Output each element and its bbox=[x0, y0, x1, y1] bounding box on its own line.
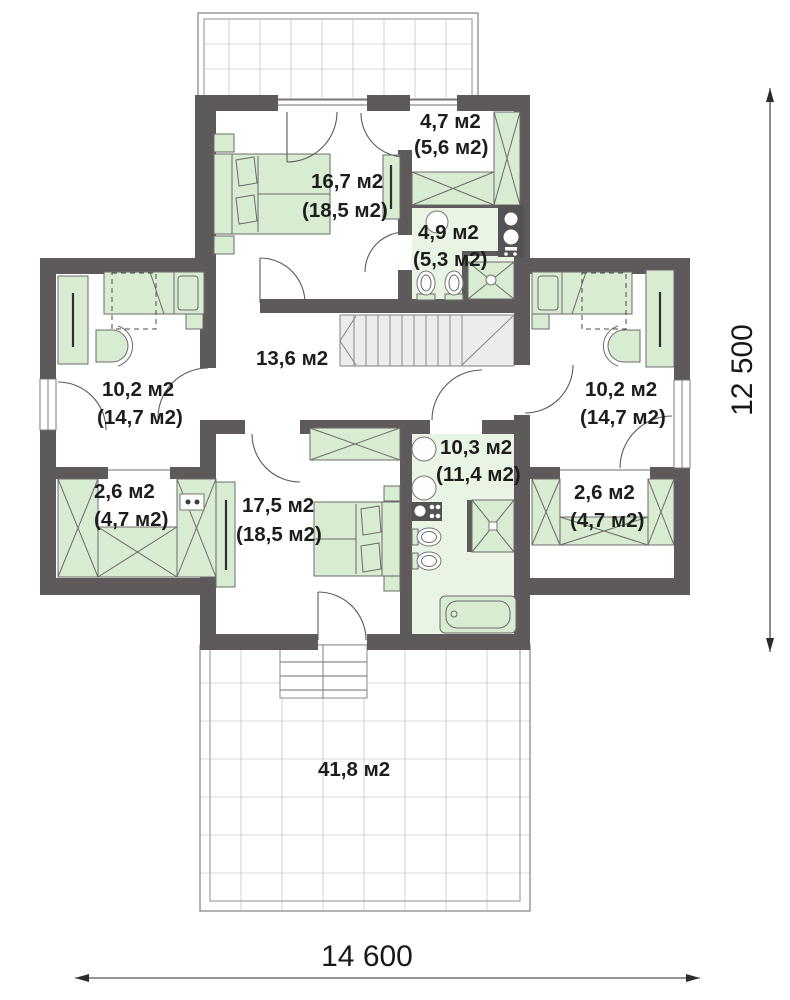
terrace-door-arc bbox=[318, 592, 366, 640]
toilet bbox=[417, 271, 435, 300]
dimension-depth: 12 500 bbox=[726, 88, 774, 652]
bedroom-top-furniture bbox=[214, 134, 400, 254]
label-terrace: 41,8 м2 bbox=[318, 758, 390, 781]
window-left bbox=[40, 379, 56, 430]
balcony-top bbox=[198, 13, 478, 100]
terrace-steps bbox=[280, 645, 367, 698]
bedroom-right-door-arc bbox=[525, 365, 573, 413]
nightstand bbox=[214, 134, 234, 152]
bed-foot-block bbox=[186, 314, 203, 329]
bedroom-bottom-door-arc bbox=[252, 434, 300, 482]
laundry-box bbox=[180, 494, 204, 510]
label-closet-right: 2,6 м2 bbox=[574, 481, 635, 504]
pillow bbox=[178, 276, 198, 310]
nightstand bbox=[384, 576, 400, 591]
window-right bbox=[674, 380, 690, 468]
nightstand bbox=[214, 236, 234, 254]
label-bath-top: 4,9 м2 bbox=[418, 221, 479, 244]
label-closet-left-total: (4,7 м2) bbox=[94, 508, 168, 531]
dimension-width-label: 14 600 bbox=[321, 940, 413, 973]
pillow bbox=[361, 506, 381, 535]
label-wardrobe-top: 4,7 м2 bbox=[420, 110, 481, 133]
pillow bbox=[538, 276, 558, 310]
label-bedroom-bottom: 17,5 м2 bbox=[242, 494, 314, 517]
bedroom-left-furniture bbox=[58, 272, 204, 366]
bedroom-right-furniture bbox=[532, 270, 674, 367]
pillow bbox=[361, 543, 381, 572]
label-hall: 13,6 м2 bbox=[256, 347, 328, 370]
chair bbox=[608, 330, 640, 362]
bathtub bbox=[440, 596, 516, 633]
pillow bbox=[236, 195, 257, 224]
washbasin bbox=[412, 476, 436, 500]
dimension-depth-label: 12 500 bbox=[726, 324, 759, 416]
bidet bbox=[445, 271, 463, 300]
toilet bbox=[412, 528, 441, 546]
bath-top-door-arc bbox=[365, 232, 405, 272]
nightstand bbox=[384, 486, 400, 501]
washbasin bbox=[412, 437, 436, 461]
label-bath-bottom-total: (11,4 м2) bbox=[436, 463, 521, 486]
bath-bottom-door-arc bbox=[432, 370, 482, 420]
label-bath-top-total: (5,3 м2) bbox=[413, 248, 487, 271]
staircase bbox=[340, 315, 514, 366]
label-bedroom-right-total: (14,7 м2) bbox=[580, 406, 666, 429]
label-closet-right-total: (4,7 м2) bbox=[570, 509, 644, 532]
label-closet-left: 2,6 м2 bbox=[94, 480, 155, 503]
shower bbox=[467, 500, 514, 552]
label-bedroom-right: 10,2 м2 bbox=[585, 378, 657, 401]
bed-foot-block bbox=[532, 314, 549, 329]
dimension-width: 14 600 bbox=[75, 940, 700, 982]
label-bedroom-bottom-total: (18,5 м2) bbox=[236, 523, 322, 546]
label-bedroom-left-total: (14,7 м2) bbox=[97, 406, 183, 429]
label-wardrobe-top-total: (5,6 м2) bbox=[414, 136, 488, 159]
label-bedroom-top-total: (18,5 м2) bbox=[302, 199, 388, 222]
bidet bbox=[412, 552, 441, 570]
label-bedroom-left: 10,2 м2 bbox=[102, 378, 174, 401]
label-bath-bottom: 10,3 м2 bbox=[440, 436, 512, 459]
label-bedroom-top: 16,7 м2 bbox=[311, 170, 383, 193]
bedroom-top-door-arc bbox=[260, 258, 305, 303]
floor-plan-svg: 16,7 м2 (18,5 м2) 4,7 м2 (5,6 м2) 4,9 м2… bbox=[0, 0, 790, 1000]
floor-plan-page: 16,7 м2 (18,5 м2) 4,7 м2 (5,6 м2) 4,9 м2… bbox=[0, 0, 790, 1000]
pillow bbox=[236, 157, 257, 186]
chair bbox=[96, 330, 128, 362]
